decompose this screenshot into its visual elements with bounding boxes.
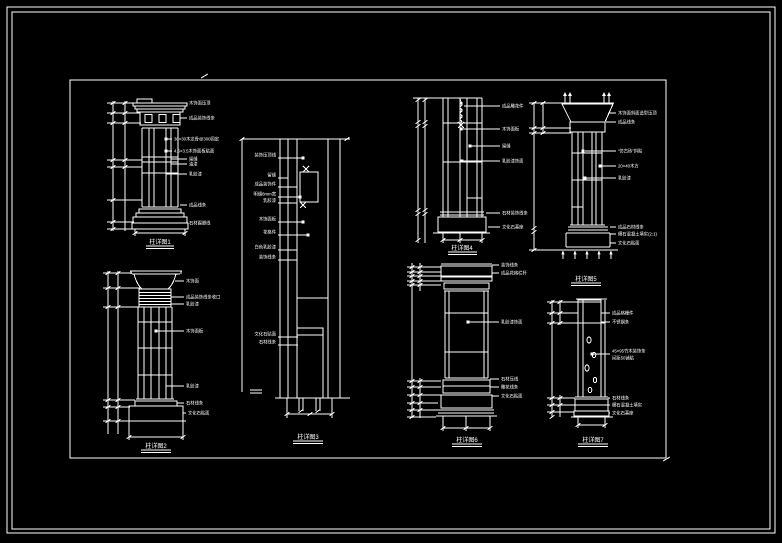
annotation-label: 成品花格栏杆 xyxy=(501,270,527,277)
drawing-column-detail-5 xyxy=(529,93,618,259)
annotation-label: 细石混凝土填实 xyxy=(612,402,643,409)
drawing-title: 柱详图7 xyxy=(582,436,604,444)
annotation-label: 木饰面板 xyxy=(502,126,520,133)
annotation-label: 文化石贴面 xyxy=(501,393,523,400)
annotation-label: 间距50铺贴 xyxy=(612,355,635,362)
drawing-title: 柱详图6 xyxy=(456,436,478,444)
annotation-label: 石材踢脚线 xyxy=(189,220,211,227)
annotation-label: 乳胶漆 xyxy=(263,197,277,204)
drawing-title: 柱详图5 xyxy=(575,275,597,283)
annotation-label: “仿古砖”斜贴 xyxy=(618,148,643,155)
drawing-title: 柱详图2 xyxy=(145,442,167,450)
annotation-label: 成品线条 xyxy=(189,202,207,209)
dentil-band xyxy=(441,266,492,276)
annotation-label: 木饰面斜面造型压顶 xyxy=(618,110,657,117)
drawing-title: 柱详图3 xyxy=(297,433,319,441)
drawing-5-title-underline xyxy=(571,283,601,286)
drawing-title: 柱详图1 xyxy=(149,238,171,246)
annotation-label: 留缝 xyxy=(502,143,511,150)
annotation-label: 成品装饰线条 xyxy=(189,115,215,122)
annotation-label: 文化石贴面 xyxy=(618,240,640,247)
annotation-label: 明缝8mm宽 xyxy=(254,191,277,198)
cad-sheet: { "page": { "colors": { "background": "#… xyxy=(0,0,782,543)
annotation-label: 雕花线条 xyxy=(501,384,519,391)
column-shaft-ornament-strip xyxy=(154,128,166,207)
annotation-label: 成品装饰件 xyxy=(255,181,277,188)
annotation-label: 石材线条 xyxy=(259,339,277,346)
drawing-column-detail-3 xyxy=(240,137,350,418)
annotation-label: 细石混凝土填实(2:1) xyxy=(618,231,657,238)
post-ornament-block xyxy=(300,172,318,202)
column-shaft-hatch-strip xyxy=(151,307,159,399)
post-masonry-base xyxy=(297,328,323,398)
annotation-label: 石材线条 xyxy=(612,395,630,402)
annotation-label: 4.5×3.5木饰面板贴面 xyxy=(174,148,215,155)
drawing-4-annotations: 成品雕花件 木饰面板 留缝 乳胶漆饰面 石材装饰线条 文化石基座 柱详图4 xyxy=(451,103,528,253)
textured-band xyxy=(444,283,489,289)
capital-hatched xyxy=(562,104,613,122)
annotation-label: 文化石基座 xyxy=(502,224,524,231)
annotation-label: 乳胶漆饰面 xyxy=(502,158,524,165)
pilaster-fluting xyxy=(583,300,601,397)
annotation-label: 文化石基座 xyxy=(612,410,634,417)
annotation-label: 留缝 xyxy=(267,172,276,179)
annotation-label: 木饰面压顶 xyxy=(189,100,211,107)
annotation-label: 文化石贴面 xyxy=(188,410,210,417)
column-base-stone xyxy=(129,406,183,421)
annotation-label: 乳胶漆 xyxy=(618,175,632,182)
annotation-label: 木饰面板 xyxy=(186,328,204,335)
annotation-label: 油漆 xyxy=(189,161,198,168)
base-speckled-band xyxy=(441,395,492,408)
drawing-2-title-underline xyxy=(141,450,171,453)
capital-band xyxy=(570,122,605,132)
drawing-title: 柱详图4 xyxy=(451,244,473,252)
annotation-label: 不锈钢条 xyxy=(612,319,630,326)
annotation-label: 45×95竹木装饰条 xyxy=(612,348,646,355)
annotation-label: 30×30木龙骨@300固定 xyxy=(174,136,220,143)
annotation-label: 乳胶漆 xyxy=(186,301,200,308)
annotation-label: 木饰面 xyxy=(186,278,200,285)
annotation-label: 乳胶漆饰面 xyxy=(501,319,523,326)
annotation-label: 装饰线条 xyxy=(259,254,277,261)
pilaster-side-band xyxy=(578,300,583,397)
annotation-label: 乳胶漆 xyxy=(189,171,203,178)
pilaster-top-grid xyxy=(578,302,601,323)
post-base-stone xyxy=(438,217,486,232)
drawing-column-detail-6 xyxy=(407,263,499,431)
drawing-column-detail-1 xyxy=(107,99,188,236)
drawing-7-title-underline xyxy=(578,444,608,447)
drawing-column-detail-7 xyxy=(547,299,613,428)
annotation-label: 石材压线 xyxy=(501,376,519,383)
annotation-label: 成品石材线条 xyxy=(618,224,644,231)
drawing-column-detail-2 xyxy=(103,271,186,440)
drawing-4-title-underline xyxy=(448,252,477,255)
annotation-label: 成品雕花件 xyxy=(502,103,524,110)
annotation-label: 20×40木方 xyxy=(618,163,639,170)
page-border xyxy=(7,7,775,533)
annotation-label: 石材线条 xyxy=(186,400,204,407)
annotation-label: 文化石贴面 xyxy=(255,331,277,338)
drawing-3-title-underline xyxy=(293,441,323,444)
annotation-label: 成品格栅件 xyxy=(612,310,634,317)
drawing-column-detail-4 xyxy=(413,98,500,243)
annotation-label: 成品线条 xyxy=(618,119,636,126)
drawing-1-title-underline xyxy=(146,246,174,249)
drawing-7-annotations: 成品格栅件 不锈钢条 45×95竹木装饰条 间距50铺贴 石材线条 细石混凝土填… xyxy=(582,310,646,445)
annotation-label: 木饰面板 xyxy=(259,216,277,223)
annotation-label: 花格件 xyxy=(263,229,277,236)
annotation-label: 乳胶漆 xyxy=(186,383,200,390)
annotation-label: 白色乳胶漆 xyxy=(255,244,277,251)
annotation-label: 石材装饰线条 xyxy=(502,210,528,217)
drawing-5-annotations: 木饰面斜面造型压顶 成品线条 “仿古砖”斜贴 20×40木方 乳胶漆 成品石材线… xyxy=(575,110,657,284)
cad-canvas: 木饰面压顶 成品装饰线条 30×30木龙骨@300固定 4.5×3.5木饰面板贴… xyxy=(0,0,782,543)
annotation-label: 装饰压顶线 xyxy=(255,152,277,159)
annotation-label: 成品装饰线条收口 xyxy=(186,294,220,301)
drawing-6-title-underline xyxy=(452,444,482,447)
annotation-label: 装饰线条 xyxy=(501,262,519,269)
